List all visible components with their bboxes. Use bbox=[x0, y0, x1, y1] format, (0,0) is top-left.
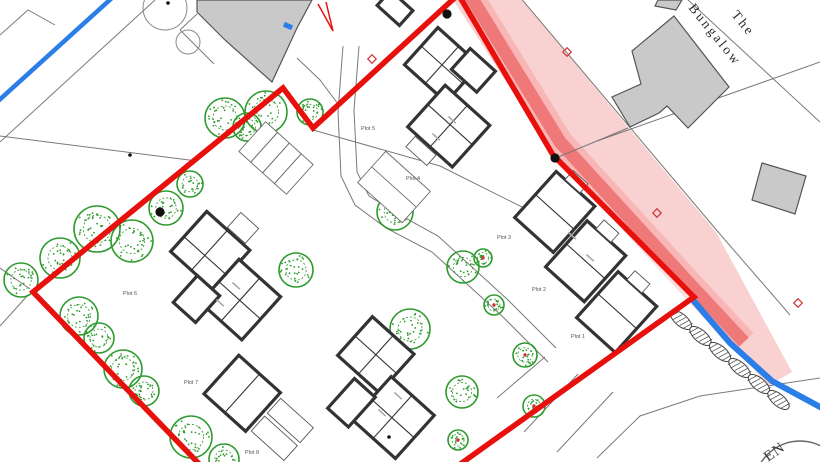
survey-point-dot bbox=[442, 9, 451, 18]
plot-label: Plot 1 bbox=[571, 334, 585, 340]
blue-edge-line bbox=[0, 0, 113, 102]
existing-building bbox=[752, 163, 806, 214]
proposed-tree-symbol bbox=[484, 295, 504, 315]
existing-tree-symbol bbox=[177, 171, 203, 197]
existing-tree-symbol bbox=[209, 444, 239, 462]
existing-tree-symbol bbox=[129, 376, 159, 406]
tree-center-dot bbox=[523, 353, 526, 356]
proposed-building-footprint bbox=[307, 317, 456, 462]
survey-point-dot bbox=[550, 153, 559, 162]
plot-label: Plot 3 bbox=[497, 235, 511, 241]
existing-building bbox=[197, 0, 312, 82]
proposed-tree-symbol bbox=[513, 343, 537, 367]
parking-bay-outline bbox=[358, 151, 431, 222]
survey-point-dot bbox=[155, 207, 164, 216]
site-plan: Plot 1Plot 2Plot 3Plot 4Plot 5Plot 6Plot… bbox=[0, 0, 820, 462]
plot-label: Plot 7 bbox=[184, 380, 198, 386]
tree-center-dot bbox=[492, 303, 495, 306]
plot-label: Plot 4 bbox=[406, 176, 420, 182]
field-boundary-line bbox=[0, 0, 155, 142]
utility-marker bbox=[368, 55, 376, 63]
existing-tree-symbol bbox=[446, 376, 478, 408]
existing-building bbox=[655, 0, 682, 10]
bungalow-label-the: The bbox=[729, 7, 759, 39]
field-boundary-line bbox=[0, 295, 28, 326]
red-arrow-mark bbox=[326, 2, 333, 31]
field-boundary-line bbox=[0, 136, 197, 161]
survey-point-dot-small bbox=[387, 435, 391, 439]
site-plan-drawing: Plot 1Plot 2Plot 3Plot 4Plot 5Plot 6Plot… bbox=[0, 0, 820, 462]
en-symbol-text: EN bbox=[761, 440, 788, 462]
plot-label: Plot 5 bbox=[361, 126, 375, 132]
plot-label: Plot 6 bbox=[123, 291, 137, 297]
proposed-building-footprint bbox=[377, 0, 413, 25]
tree-center-dot bbox=[456, 438, 459, 441]
red-arrow-mark bbox=[318, 4, 333, 31]
proposed-building-footprint bbox=[204, 355, 316, 462]
field-boundary-line bbox=[497, 357, 545, 398]
proposed-tree-symbol bbox=[448, 430, 468, 450]
plot-label: Plot 8 bbox=[245, 450, 259, 456]
existing-tree-symbol bbox=[279, 253, 313, 287]
field-boundary-line bbox=[557, 392, 613, 452]
tree-center-dot bbox=[481, 256, 484, 259]
survey-point-dot-small bbox=[166, 1, 170, 5]
field-boundary-line bbox=[297, 58, 338, 104]
survey-point-dot-small bbox=[128, 153, 132, 157]
field-boundary-line bbox=[180, 30, 214, 64]
utility-marker bbox=[794, 299, 802, 307]
en-map-symbol: EN bbox=[754, 440, 820, 462]
existing-canopy-outline bbox=[176, 30, 200, 54]
field-boundary-line bbox=[0, 10, 55, 35]
plot-label: Plot 2 bbox=[532, 287, 546, 293]
